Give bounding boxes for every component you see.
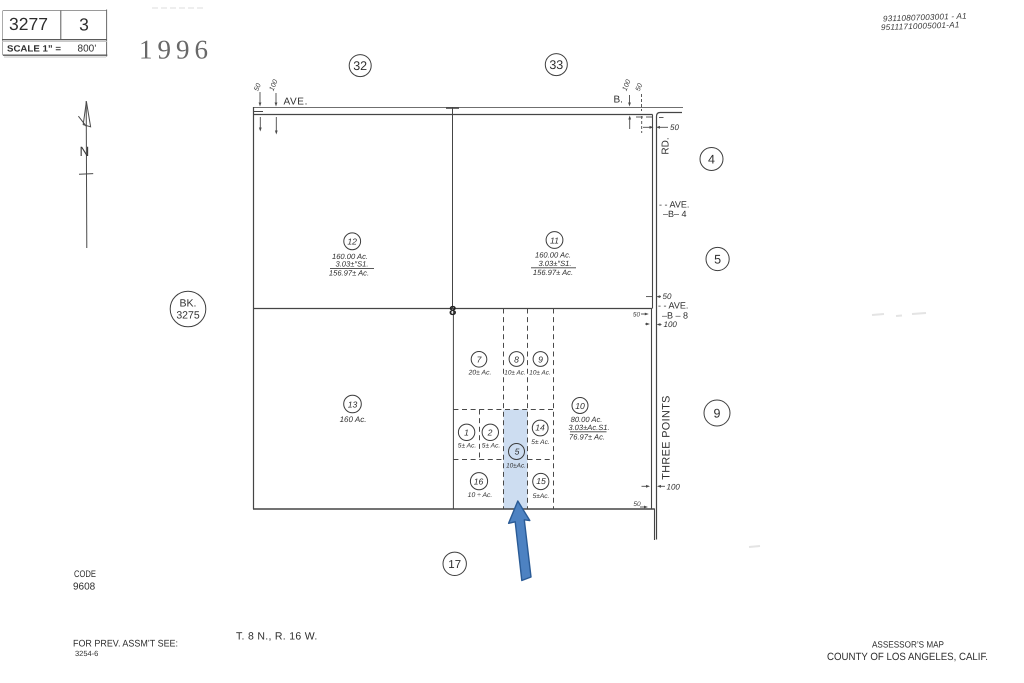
svg-text:17: 17 <box>448 559 461 571</box>
svg-text:9608: 9608 <box>73 582 96 593</box>
svg-text:50: 50 <box>253 82 262 92</box>
svg-text:10 ÷ Ac.: 10 ÷ Ac. <box>468 492 493 499</box>
svg-text:4: 4 <box>708 153 715 167</box>
svg-text:ASSESSOR’S MAP: ASSESSOR’S MAP <box>872 639 944 649</box>
svg-text:156.97± Ac.: 156.97± Ac. <box>329 268 369 277</box>
svg-text:95111710005001-A1: 95111710005001-A1 <box>881 20 960 32</box>
svg-text:50: 50 <box>633 501 641 508</box>
svg-text:50: 50 <box>670 123 679 132</box>
svg-text:20± Ac.: 20± Ac. <box>468 370 492 377</box>
svg-text:- - AVE.: - - AVE. <box>658 301 688 311</box>
svg-text:B.: B. <box>614 94 623 105</box>
svg-text:15: 15 <box>536 476 546 486</box>
svg-text:13: 13 <box>348 399 358 409</box>
svg-text:16: 16 <box>474 476 484 486</box>
svg-text:10± Ac.: 10± Ac. <box>529 370 550 377</box>
svg-text:FOR PREV. ASSM’T SEE:: FOR PREV. ASSM’T SEE: <box>73 639 178 650</box>
svg-text:800’: 800’ <box>78 44 97 55</box>
svg-text:9: 9 <box>714 407 721 421</box>
svg-text:100: 100 <box>667 483 681 492</box>
svg-text:1996: 1996 <box>139 35 213 65</box>
svg-text:10: 10 <box>575 401 585 411</box>
svg-text:BK.: BK. <box>180 298 197 310</box>
svg-text:AVE.: AVE. <box>284 97 308 108</box>
svg-text:3254-6: 3254-6 <box>75 649 98 658</box>
svg-text:5± Ac.: 5± Ac. <box>531 439 550 446</box>
svg-text:12: 12 <box>347 237 357 247</box>
svg-text:THREE POINTS: THREE POINTS <box>660 395 672 480</box>
svg-text:SCALE 1” =: SCALE 1” = <box>7 43 61 53</box>
svg-text:3277: 3277 <box>9 14 48 34</box>
svg-text:CODE: CODE <box>74 569 96 580</box>
svg-text:3: 3 <box>79 15 89 35</box>
svg-text:5± Ac.: 5± Ac. <box>482 443 501 450</box>
svg-text:160 Ac.: 160 Ac. <box>340 415 367 424</box>
svg-text:10± Ac.: 10± Ac. <box>504 370 525 377</box>
svg-text:2: 2 <box>487 428 493 438</box>
svg-text:50: 50 <box>633 312 641 319</box>
svg-text:8: 8 <box>449 303 456 318</box>
svg-text:N: N <box>80 144 90 159</box>
svg-text:T. 8 N., R. 16 W.: T. 8 N., R. 16 W. <box>236 631 318 643</box>
svg-text:- - AVE.: - - AVE. <box>659 200 689 210</box>
svg-text:156.97± Ac.: 156.97± Ac. <box>533 268 573 277</box>
svg-text:33: 33 <box>549 58 563 72</box>
svg-text:5± Ac.: 5± Ac. <box>458 443 477 450</box>
svg-text:5: 5 <box>714 253 721 267</box>
svg-text:100: 100 <box>664 320 678 329</box>
svg-text:3.03±Ac.S1.: 3.03±Ac.S1. <box>568 423 609 432</box>
svg-text:5±Ac.: 5±Ac. <box>533 493 550 500</box>
svg-text:5: 5 <box>515 447 520 457</box>
svg-text:76.97± Ac.: 76.97± Ac. <box>569 433 605 442</box>
svg-text:–B– 4: –B– 4 <box>663 209 687 219</box>
svg-text:COUNTY OF LOS ANGELES, CALIF.: COUNTY OF LOS ANGELES, CALIF. <box>827 651 988 663</box>
svg-text:100: 100 <box>269 79 280 93</box>
svg-text:50: 50 <box>635 82 644 92</box>
svg-text:3275: 3275 <box>176 310 200 322</box>
svg-text:14: 14 <box>535 422 545 432</box>
svg-text:7: 7 <box>477 355 483 365</box>
svg-text:8: 8 <box>514 354 519 364</box>
svg-text:10±Ac.: 10±Ac. <box>506 463 526 470</box>
svg-text:9: 9 <box>538 354 543 364</box>
svg-text:3.03±″S1.: 3.03±″S1. <box>538 259 571 268</box>
svg-text:1: 1 <box>464 428 469 438</box>
svg-text:11: 11 <box>550 235 559 245</box>
svg-text:3.03±″S1.: 3.03±″S1. <box>335 260 368 269</box>
svg-text:100: 100 <box>622 79 633 93</box>
svg-text:RD.: RD. <box>661 137 672 154</box>
svg-text:50: 50 <box>663 292 672 301</box>
svg-text:32: 32 <box>353 59 367 73</box>
